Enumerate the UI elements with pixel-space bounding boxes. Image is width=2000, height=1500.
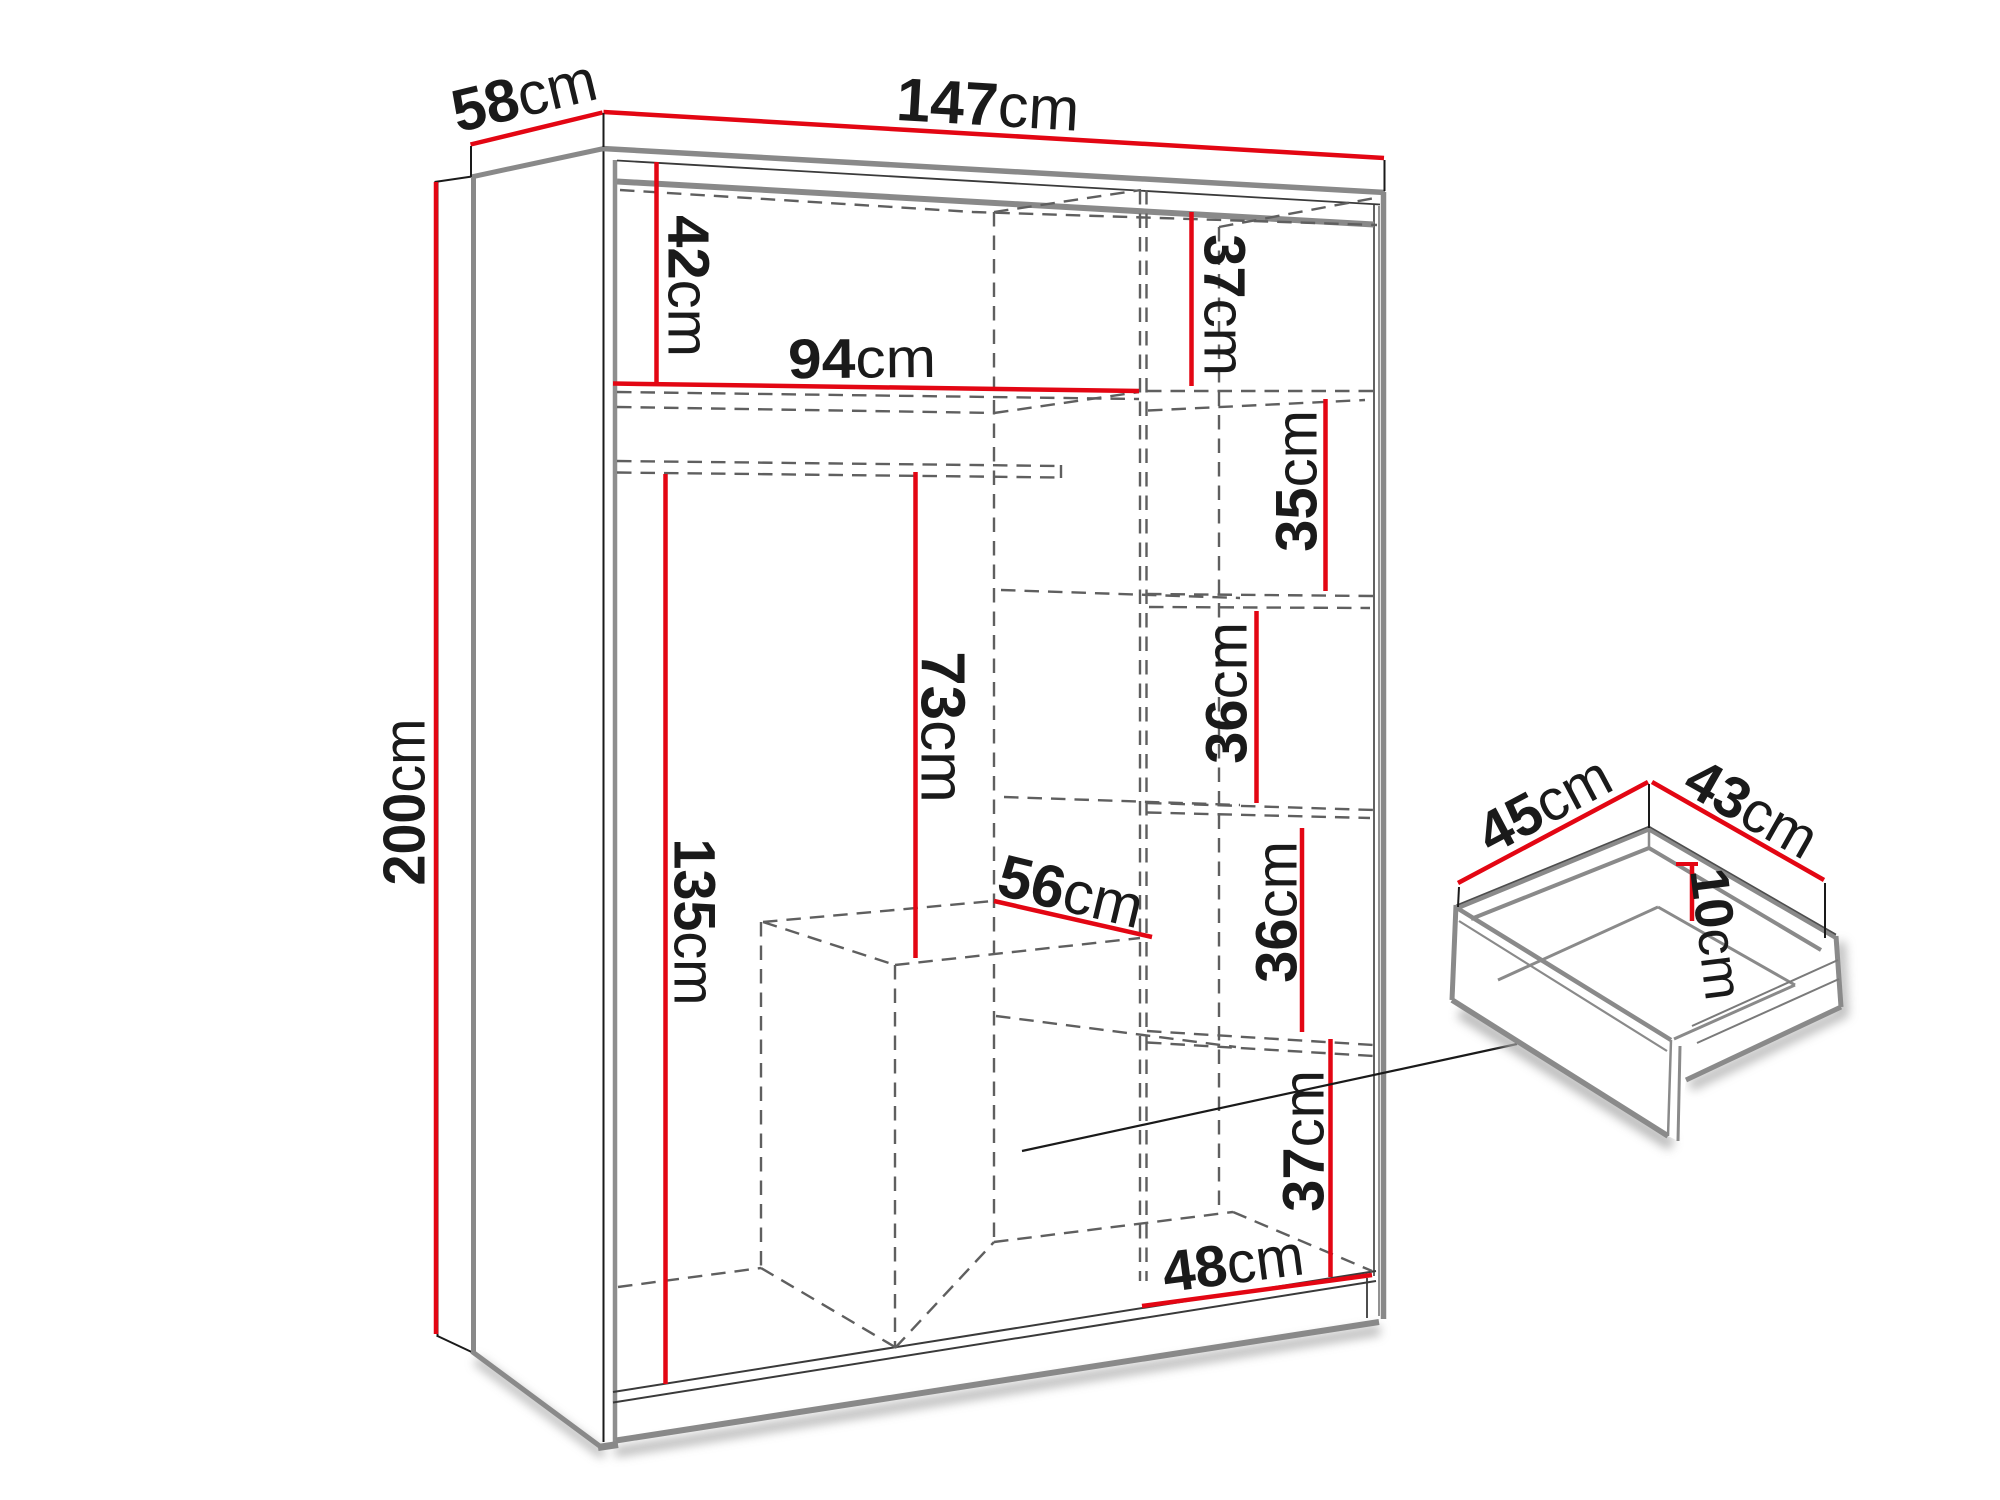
svg-text:37cm: 37cm	[1271, 1070, 1336, 1212]
svg-text:37cm: 37cm	[1192, 234, 1257, 376]
svg-text:73cm: 73cm	[907, 651, 976, 803]
svg-text:36cm: 36cm	[1244, 841, 1309, 983]
svg-text:135cm: 135cm	[662, 839, 727, 1006]
svg-text:94cm: 94cm	[788, 326, 937, 390]
svg-text:42cm: 42cm	[656, 215, 721, 357]
svg-text:36cm: 36cm	[1194, 622, 1259, 764]
svg-text:35cm: 35cm	[1264, 410, 1329, 552]
svg-text:147cm: 147cm	[895, 65, 1082, 144]
svg-text:200cm: 200cm	[372, 719, 438, 886]
